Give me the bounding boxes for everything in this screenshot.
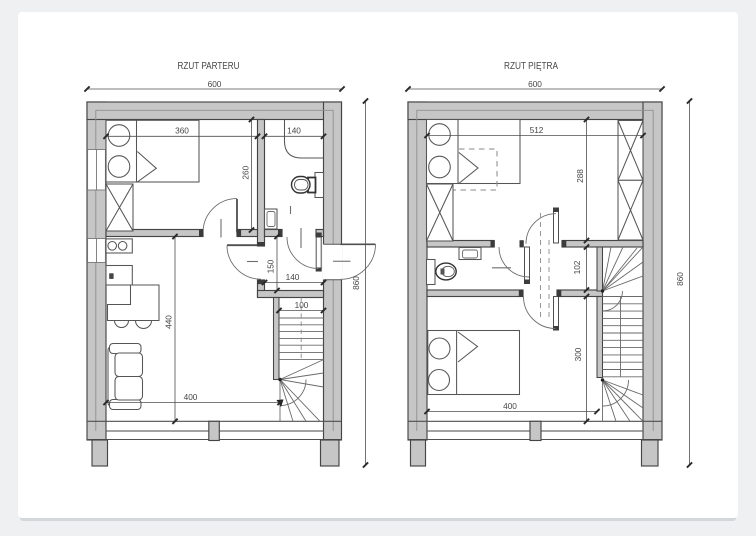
svg-text:150: 150 — [266, 259, 276, 273]
svg-text:100: 100 — [295, 300, 309, 310]
svg-text:288: 288 — [575, 169, 585, 183]
svg-text:860: 860 — [351, 276, 361, 290]
svg-text:RZUT PARTERU: RZUT PARTERU — [178, 61, 240, 72]
svg-text:RZUT PIĘTRA: RZUT PIĘTRA — [504, 61, 558, 72]
svg-text:140: 140 — [286, 272, 300, 282]
svg-text:400: 400 — [503, 401, 517, 411]
svg-text:300: 300 — [573, 347, 583, 361]
svg-text:600: 600 — [528, 79, 542, 89]
svg-text:600: 600 — [208, 79, 222, 89]
svg-text:400: 400 — [184, 392, 198, 402]
svg-text:512: 512 — [530, 125, 544, 135]
svg-text:360: 360 — [175, 126, 189, 136]
svg-text:440: 440 — [164, 315, 174, 329]
svg-text:260: 260 — [241, 165, 251, 179]
svg-text:140: 140 — [287, 126, 301, 136]
svg-text:860: 860 — [675, 272, 685, 286]
svg-text:102: 102 — [572, 260, 582, 274]
